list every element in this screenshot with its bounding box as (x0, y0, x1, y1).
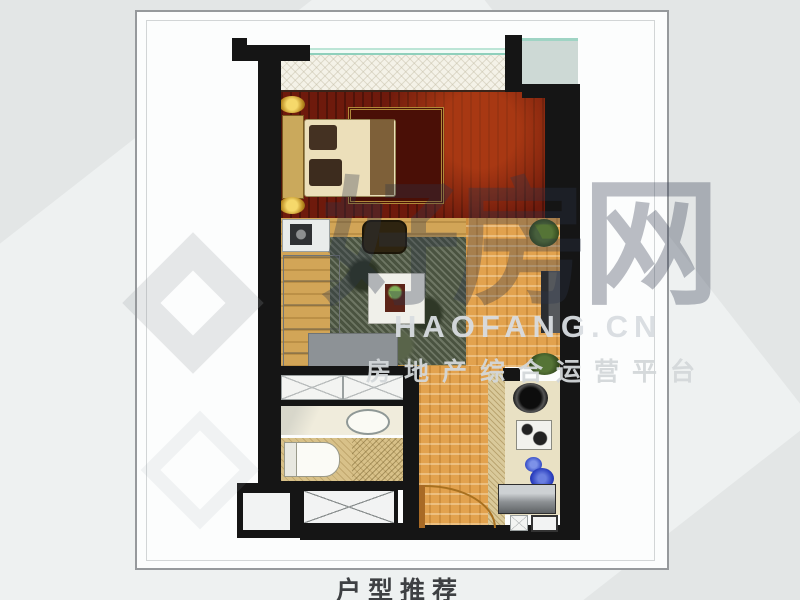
vase (385, 284, 405, 312)
balcony-floor (281, 55, 505, 92)
bed-headboard (282, 115, 304, 199)
utility-shaft (510, 515, 528, 531)
wall (503, 368, 520, 381)
wall (281, 400, 405, 406)
pillow (309, 125, 337, 150)
wall (560, 84, 580, 540)
balcony-window-glass (281, 48, 505, 55)
bedside-lamp (279, 197, 305, 214)
toilet-tank (284, 442, 297, 477)
wall (545, 92, 560, 218)
shower-area (352, 438, 405, 481)
tv-cabinet (541, 271, 560, 333)
listing-page: 好房网 HAOFANG.CN 房地产综合运营平台 户型推荐 (0, 0, 800, 600)
utility-shaft (531, 515, 558, 532)
utility-shaft (300, 487, 398, 527)
air-conditioner-unit (290, 224, 312, 245)
wall (403, 366, 419, 540)
potted-plant (529, 353, 560, 375)
potted-plant (529, 219, 559, 247)
wardrobe-left (281, 375, 343, 400)
wall (281, 366, 421, 375)
wall (258, 45, 281, 483)
gas-hob (516, 420, 552, 450)
balcony-bedroom-threshold (281, 90, 505, 92)
washing-machine (498, 484, 556, 514)
wok-burner (513, 383, 548, 413)
page-caption: 户型推荐 (0, 571, 800, 600)
utility-shaft (243, 493, 290, 530)
ac-platform (522, 38, 578, 87)
pillow (309, 159, 342, 186)
bed-foot-runner (370, 119, 394, 195)
armchair (362, 220, 407, 254)
wardrobe-right (343, 375, 405, 400)
wash-basin (346, 409, 390, 435)
floorplan-image[interactable] (232, 35, 580, 540)
wall (505, 35, 522, 92)
bedside-lamp (279, 96, 305, 113)
